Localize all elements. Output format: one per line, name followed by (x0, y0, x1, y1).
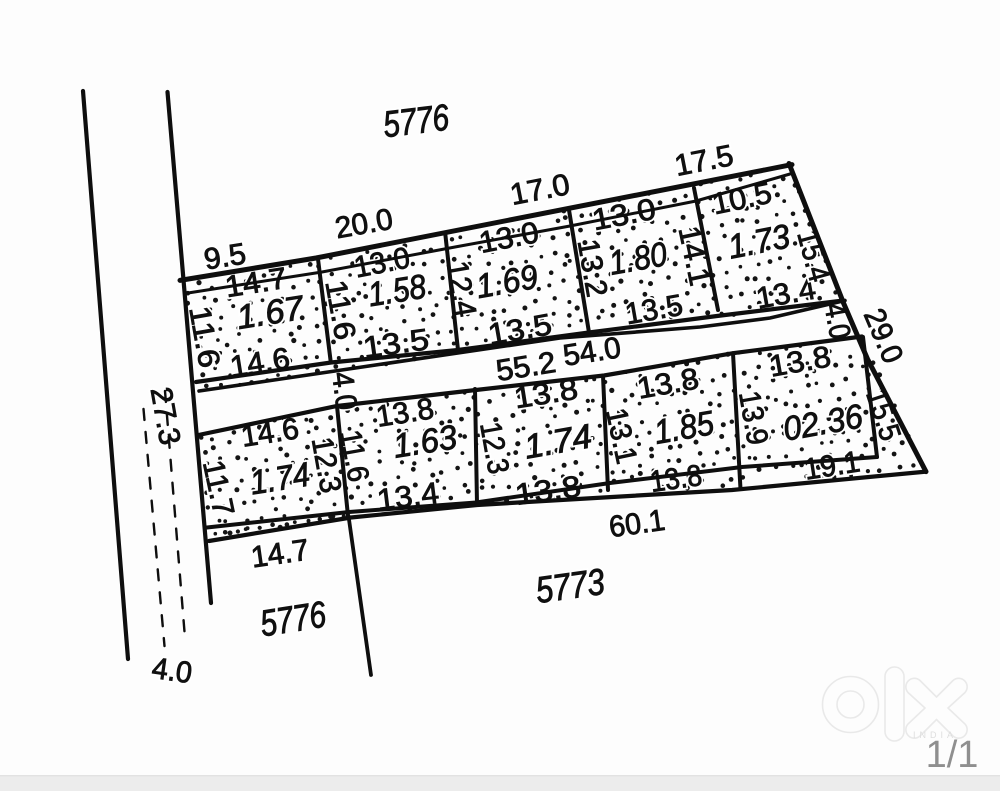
svg-text:1/1: 1/1 (926, 734, 979, 776)
svg-text:4.0: 4.0 (150, 652, 194, 690)
svg-text:5776: 5776 (381, 97, 452, 146)
